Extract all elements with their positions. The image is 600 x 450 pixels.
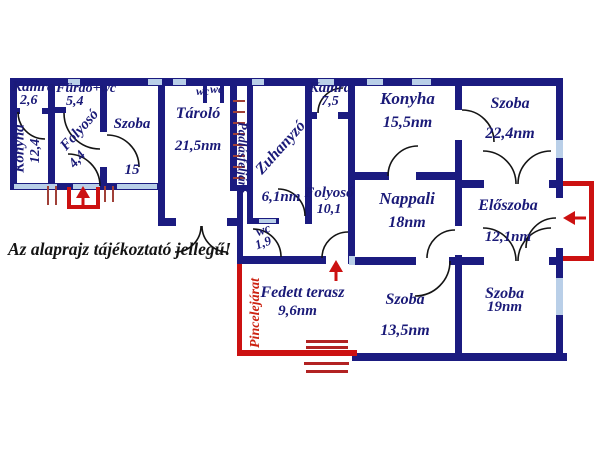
floor-plan: Kamra 2,6 Fürdő+wc 5,4 Konyha 12,4 Folyo…: [0, 0, 600, 450]
room-area-konyha-2: 15,5nm: [360, 115, 455, 131]
room-area-szoba-224: 22,4nm: [465, 126, 555, 142]
terrace-up-arrow-icon: [329, 260, 343, 281]
room-label-szoba-224: Szoba: [465, 96, 555, 112]
room-label-konyha-2: Konyha: [360, 90, 455, 107]
room-area-eloszoba: 12,1nm: [462, 230, 554, 245]
room-label-szoba-135: Szoba: [365, 292, 445, 308]
room-label-nappali: Nappali: [362, 190, 452, 207]
room-label-tarolo: Tároló: [160, 106, 236, 122]
room-label-szoba-15: Szoba: [104, 117, 160, 132]
room-area-nappali: 18nm: [362, 215, 452, 231]
door-arc: [518, 151, 551, 184]
room-area-szoba-19: 19nm: [462, 300, 547, 315]
room-label-wc-closet-2: wc: [210, 83, 223, 95]
room-area-tarolo: 21,5nm: [160, 139, 236, 154]
main-entrance-left-arrow-icon: [563, 211, 586, 225]
disclaimer-text: Az alaprajz tájékoztató jellegű!: [8, 241, 231, 259]
room-area-szoba-15: 15: [104, 163, 160, 178]
door-arc: [483, 151, 516, 184]
room-label-eloszoba: Előszoba: [462, 198, 554, 214]
room-area-szoba-135: 13,5nm: [365, 323, 445, 339]
room-label-folyoso-2: Folyosó: [298, 186, 360, 201]
room-label-wc-closet-1: wc: [196, 85, 209, 97]
entrance-up-arrow-icon: [76, 186, 90, 207]
room-area-konyha-1: 12,4: [29, 121, 43, 181]
room-area-folyoso-2: 10,1: [298, 203, 360, 217]
room-area-kamra-2: 7,5: [305, 95, 355, 109]
door-arc: [427, 230, 455, 258]
room-label-padlasfeljaro: Padlásfeljáró: [237, 93, 250, 223]
room-area-furdo-wc: 5,4: [66, 95, 84, 109]
door-arcs-layer: [0, 0, 600, 450]
door-arc: [388, 146, 418, 176]
door-arc: [322, 232, 348, 258]
room-label-pincelejarat: Pincelejárat: [249, 263, 263, 363]
room-label-konyha-1: Konyha: [13, 104, 28, 194]
